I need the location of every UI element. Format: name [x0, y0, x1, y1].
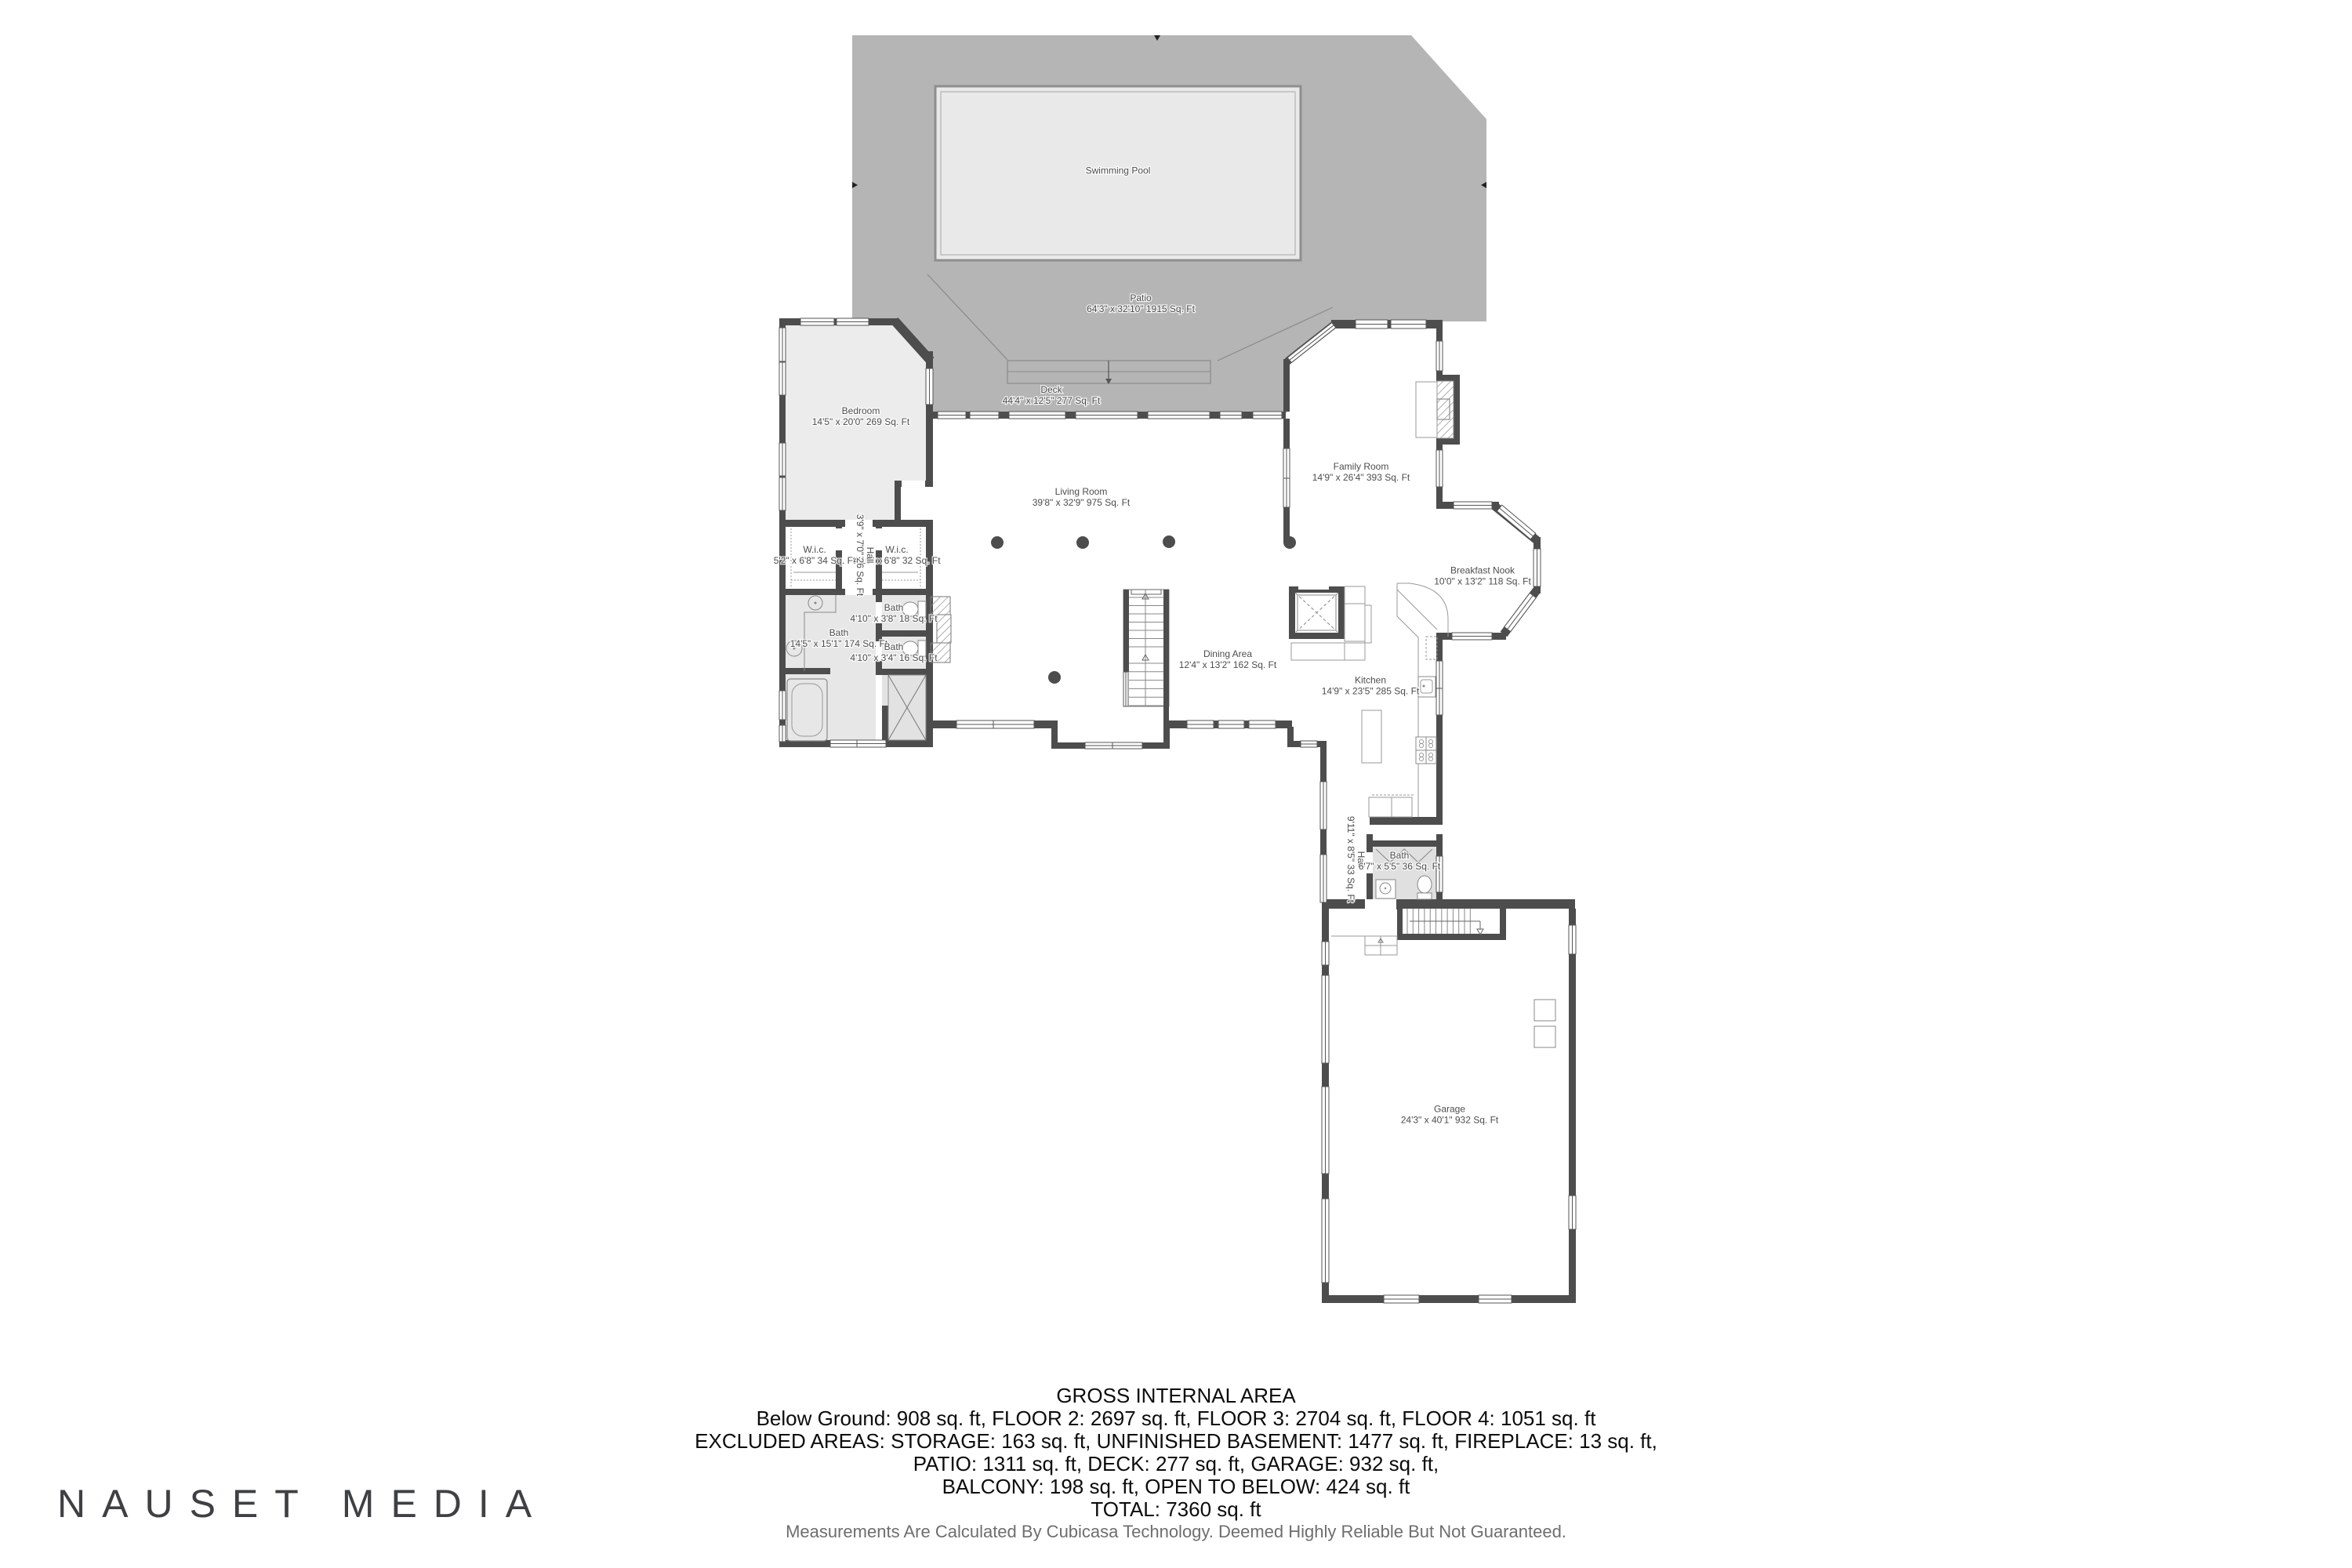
svg-text:12'4" x 13'2" 162 Sq. Ft: 12'4" x 13'2" 162 Sq. Ft [1179, 659, 1277, 670]
svg-text:Garage: Garage [1434, 1104, 1465, 1115]
svg-text:Deck: Deck [1040, 384, 1062, 395]
svg-text:14'5" x 20'0" 269 Sq. Ft: 14'5" x 20'0" 269 Sq. Ft [812, 416, 910, 427]
svg-text:4'10" x 3'8" 18 Sq. Ft: 4'10" x 3'8" 18 Sq. Ft [850, 613, 938, 624]
svg-text:Measurements Are Calculated By: Measurements Are Calculated By Cubicasa … [786, 1522, 1566, 1541]
svg-text:44'4" x 12'5" 277 Sq. Ft: 44'4" x 12'5" 277 Sq. Ft [1003, 395, 1101, 406]
svg-text:Dining Area: Dining Area [1203, 648, 1252, 659]
svg-text:Breakfast Nook: Breakfast Nook [1450, 565, 1515, 576]
svg-text:BALCONY: 198 sq. ft, OPEN TO B: BALCONY: 198 sq. ft, OPEN TO BELOW: 424 … [942, 1475, 1411, 1498]
svg-text:NAUSET MEDIA: NAUSET MEDIA [57, 1482, 548, 1526]
svg-text:5'2" x 6'8" 34 Sq. Ft: 5'2" x 6'8" 34 Sq. Ft [774, 555, 856, 566]
svg-text:Bedroom: Bedroom [842, 405, 880, 416]
svg-text:TOTAL: 7360 sq. ft: TOTAL: 7360 sq. ft [1091, 1497, 1261, 1521]
svg-text:6'7" x 5'5" 36 Sq. Ft: 6'7" x 5'5" 36 Sq. Ft [1359, 861, 1441, 872]
svg-text:3'9" x 7'0" 26 Sq. Ft: 3'9" x 7'0" 26 Sq. Ft [855, 514, 866, 597]
svg-text:Kitchen: Kitchen [1355, 675, 1386, 686]
svg-text:14'9" x 26'4" 393 Sq. Ft: 14'9" x 26'4" 393 Sq. Ft [1312, 472, 1410, 483]
svg-text:Living Room: Living Room [1055, 486, 1108, 497]
svg-text:Family Room: Family Room [1334, 461, 1389, 472]
svg-text:Bath: Bath [884, 602, 904, 613]
svg-text:PATIO: 1311 sq. ft, DECK: 277: PATIO: 1311 sq. ft, DECK: 277 sq. ft, GA… [913, 1452, 1439, 1475]
svg-text:Bath: Bath [829, 627, 849, 638]
svg-text:EXCLUDED AREAS: STORAGE: 163 s: EXCLUDED AREAS: STORAGE: 163 sq. ft, UNF… [695, 1429, 1657, 1453]
svg-text:Hall: Hall [865, 547, 876, 564]
svg-text:Bath: Bath [1390, 850, 1410, 861]
svg-text:W.i.c.: W.i.c. [885, 544, 908, 555]
svg-text:64'3" x 32'10" 1915 Sq. Ft: 64'3" x 32'10" 1915 Sq. Ft [1087, 303, 1196, 314]
svg-text:9'11" x 8'5" 33 Sq. Ft: 9'11" x 8'5" 33 Sq. Ft [1345, 816, 1356, 903]
svg-text:4'10" x 3'4" 16 Sq. Ft: 4'10" x 3'4" 16 Sq. Ft [850, 652, 938, 663]
svg-text:14'5" x 15'1" 174 Sq. Ft: 14'5" x 15'1" 174 Sq. Ft [790, 638, 888, 649]
svg-text:GROSS INTERNAL AREA: GROSS INTERNAL AREA [1056, 1384, 1296, 1407]
svg-text:Below Ground: 908 sq. ft, FLOO: Below Ground: 908 sq. ft, FLOOR 2: 2697 … [757, 1406, 1597, 1430]
svg-text:39'8" x 32'9" 975 Sq. Ft: 39'8" x 32'9" 975 Sq. Ft [1033, 497, 1131, 508]
svg-text:Swimming Pool: Swimming Pool [1086, 165, 1151, 176]
svg-text:Bath: Bath [884, 641, 904, 652]
svg-text:Patio: Patio [1130, 292, 1152, 303]
svg-text:W.i.c.: W.i.c. [803, 544, 826, 555]
svg-text:14'9" x 23'5" 285 Sq. Ft: 14'9" x 23'5" 285 Sq. Ft [1322, 686, 1420, 697]
svg-text:24'3" x 40'1" 932 Sq. Ft: 24'3" x 40'1" 932 Sq. Ft [1401, 1115, 1499, 1126]
svg-text:10'0" x 13'2" 118 Sq. Ft: 10'0" x 13'2" 118 Sq. Ft [1434, 576, 1531, 587]
